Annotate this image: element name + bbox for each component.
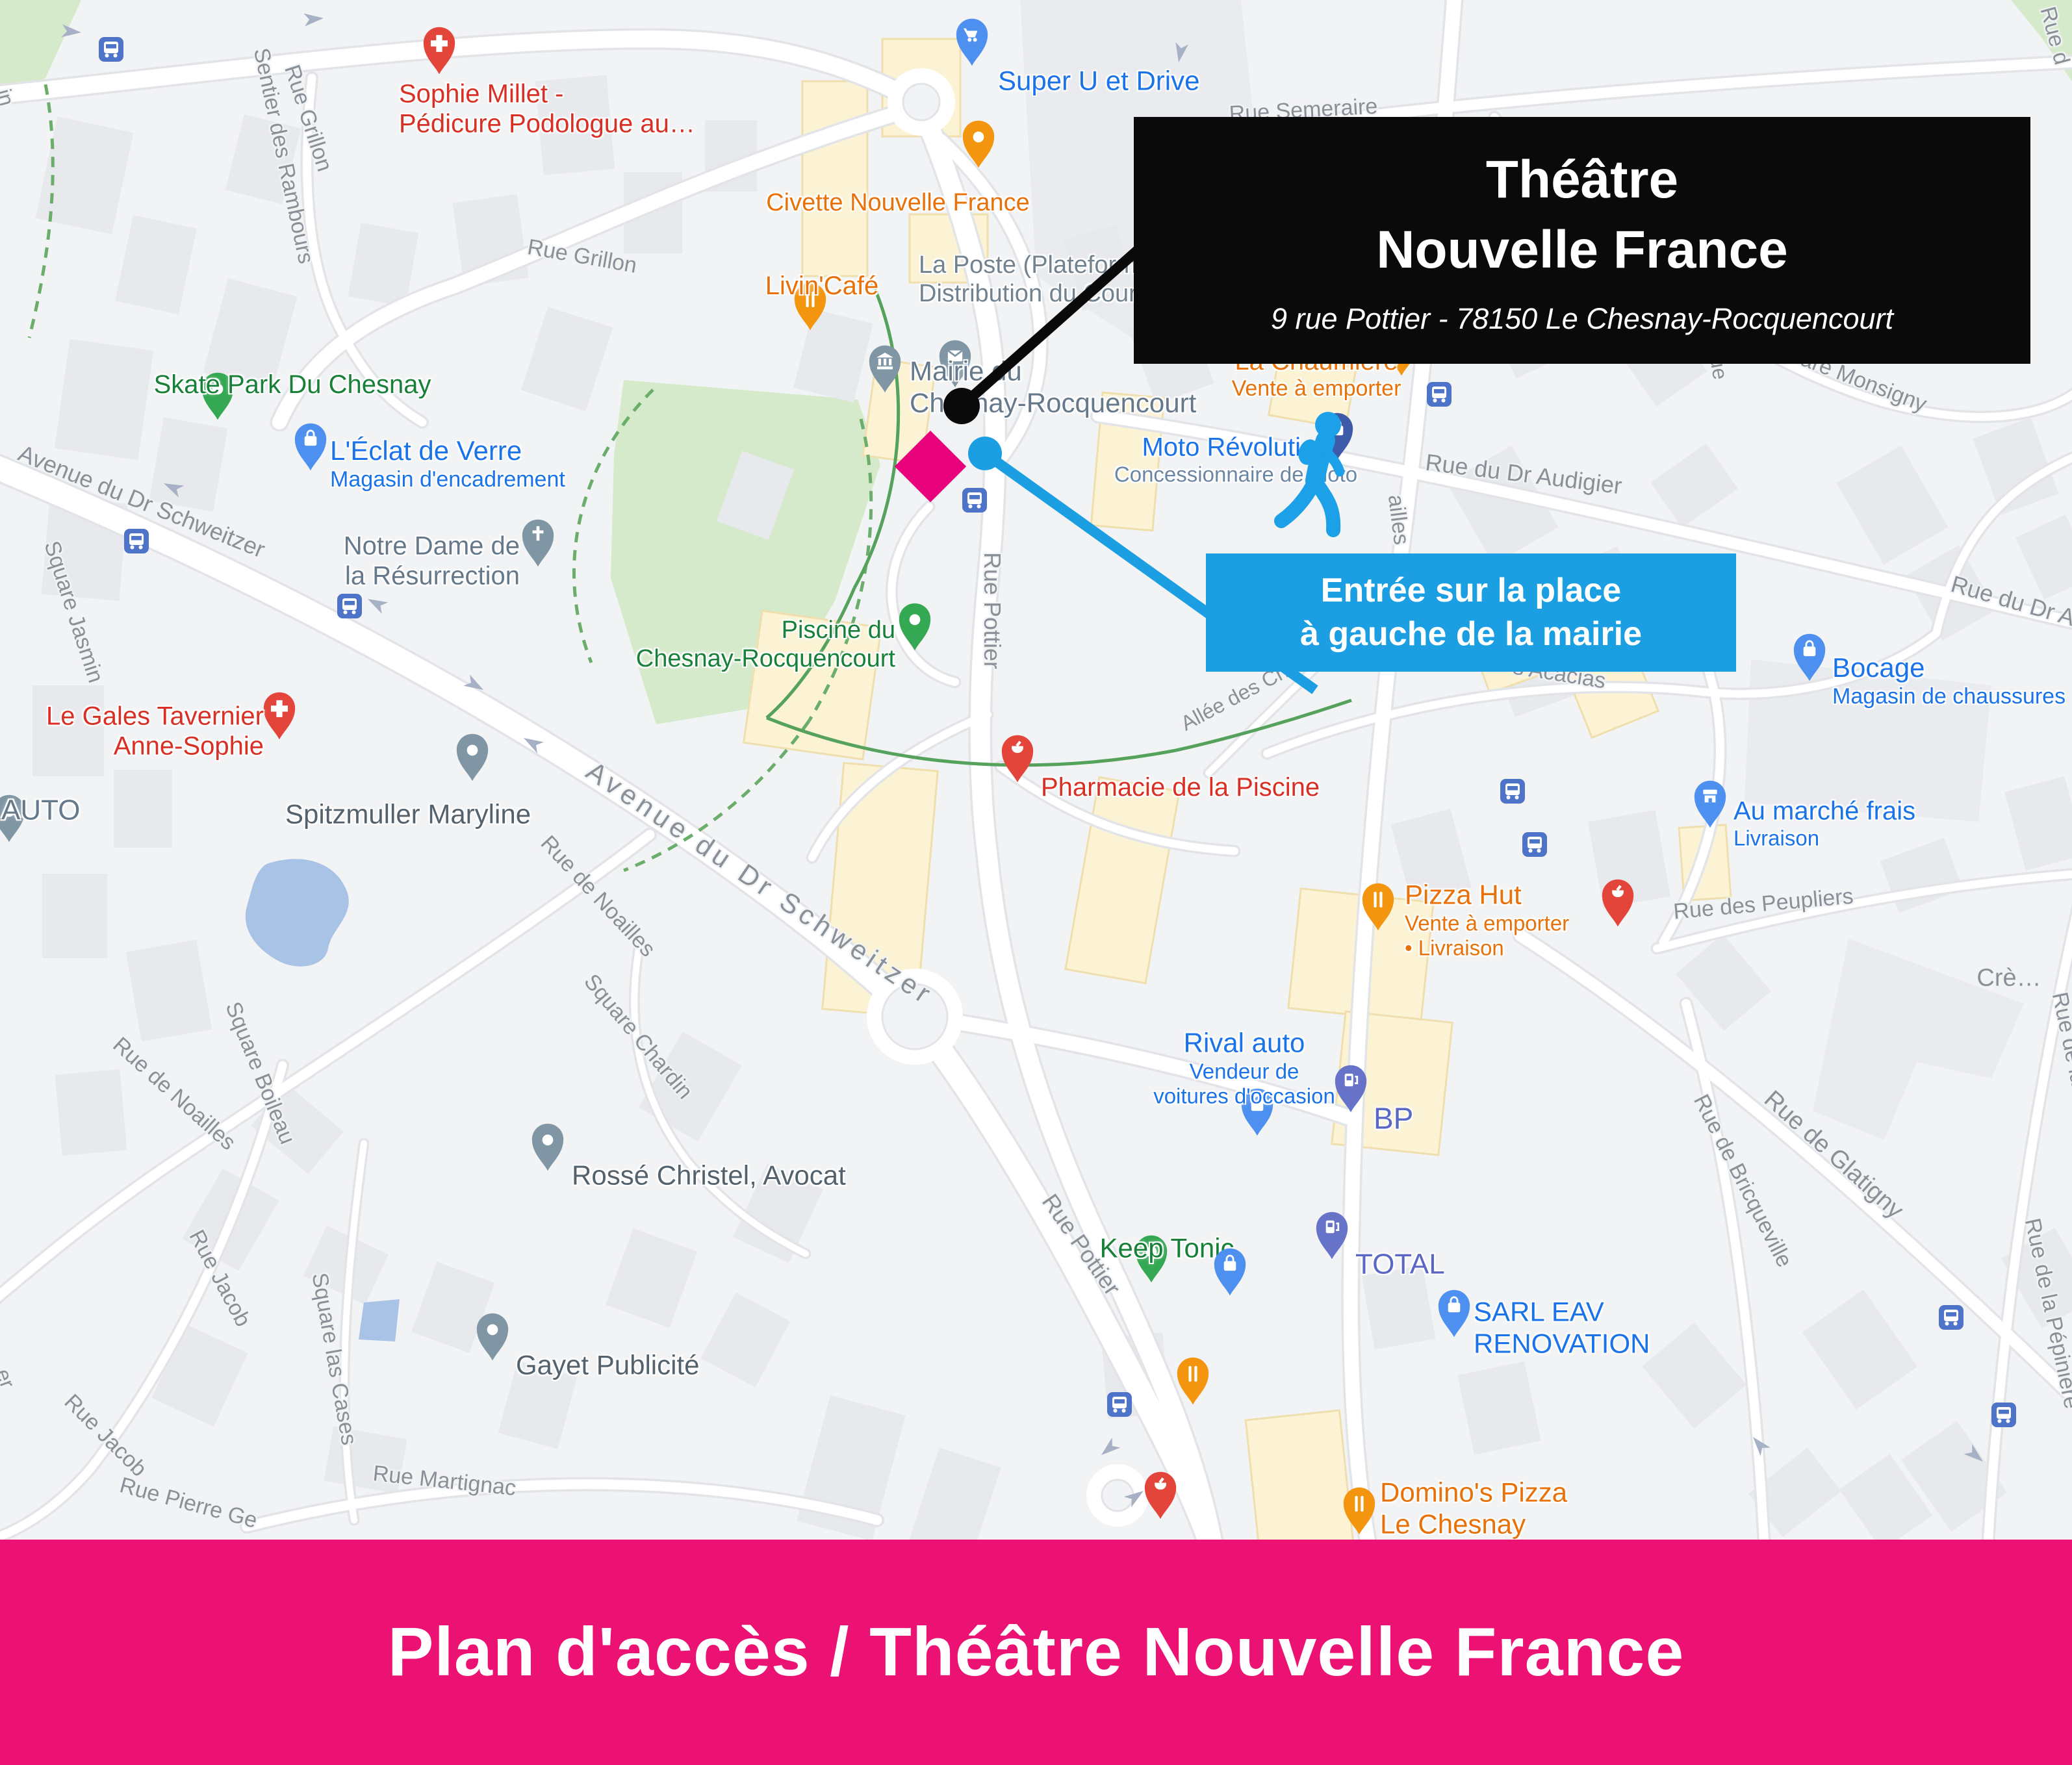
theatre-title-line2: Nouvelle France [1376, 215, 1787, 285]
map-screenshot: Rue SemeraireSentier des RamboursRue Gri… [0, 0, 2072, 1765]
entrance-line2: à gauche de la mairie [1300, 613, 1642, 656]
theatre-callout: Théâtre Nouvelle France 9 rue Pottier - … [1134, 117, 2030, 364]
banner-title: Plan d'accès / Théâtre Nouvelle France [388, 1613, 1685, 1692]
entrance-callout: Entrée sur la place à gauche de la mairi… [1206, 553, 1736, 672]
theatre-address: 9 rue Pottier - 78150 Le Chesnay-Rocquen… [1271, 302, 1893, 336]
entrance-line1: Entrée sur la place [1321, 569, 1621, 613]
walking-person-icon [1269, 404, 1366, 560]
access-plan-banner: Plan d'accès / Théâtre Nouvelle France [0, 1540, 2072, 1765]
theatre-title-line1: Théâtre [1486, 145, 1678, 215]
